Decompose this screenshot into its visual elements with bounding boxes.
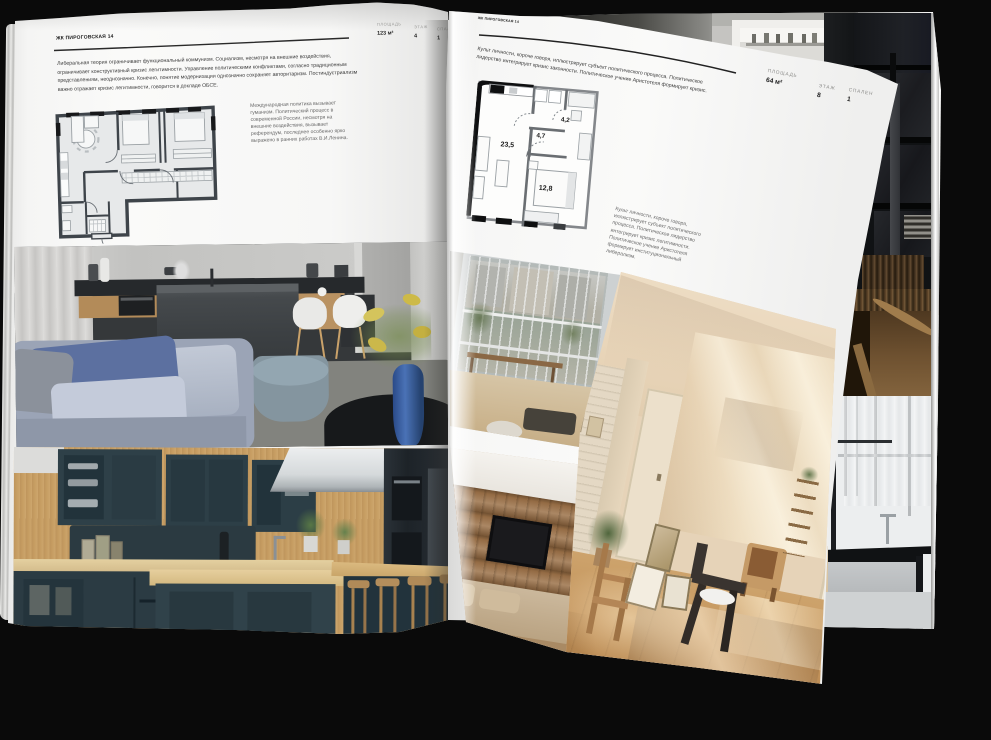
svg-text:23,5: 23,5 [500, 141, 514, 149]
svg-text:4,2: 4,2 [561, 116, 571, 124]
svg-text:4,7: 4,7 [536, 132, 546, 140]
svg-text:12,8: 12,8 [538, 185, 552, 193]
